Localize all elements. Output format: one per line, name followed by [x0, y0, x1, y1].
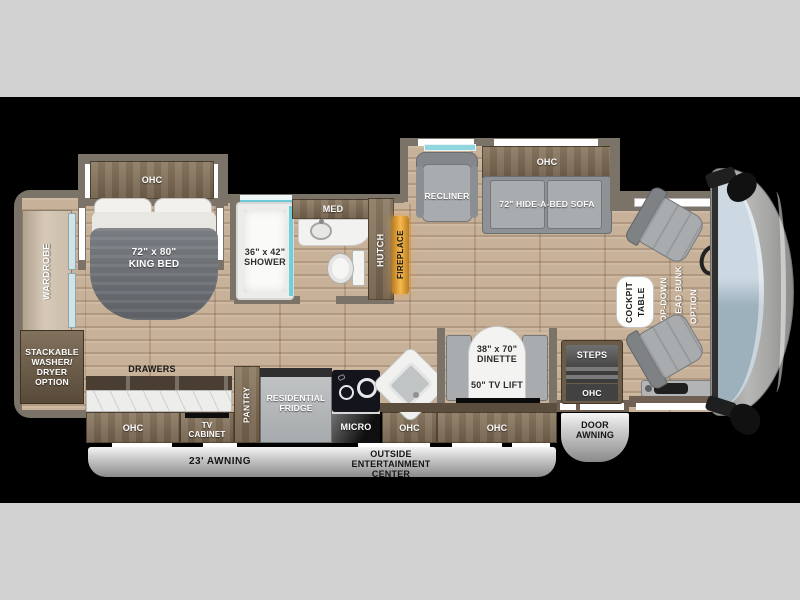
entry-door-strip-1	[560, 403, 576, 410]
fridge-top-vent	[260, 368, 332, 377]
tv-strip	[185, 413, 229, 418]
cap-highlight	[766, 192, 786, 392]
sink-icon	[310, 222, 332, 240]
dinette-slide-wall-right	[549, 328, 557, 404]
dinette-ohc: OHC	[437, 412, 557, 443]
burner-icon-small	[339, 385, 354, 400]
wardrobe-mirror-top	[68, 213, 76, 270]
steps-ohc-label: OHC	[566, 387, 618, 399]
awning-label: 23' AWNING	[150, 455, 290, 468]
kitchen-drawer-band	[86, 376, 232, 390]
shower-label: 36" x 42" SHOWER	[238, 244, 292, 270]
recliner-window	[424, 144, 476, 151]
steps-label: STEPS	[566, 349, 618, 361]
door-awning-label: DOOR AWNING	[561, 418, 629, 442]
entertainment-center-label: OUTSIDE ENTERTAINMENT CENTER	[336, 448, 446, 479]
kitchen-ohc-left: OHC	[86, 412, 180, 443]
kitchen-base-strip	[380, 403, 557, 412]
king-bed-label: 72" x 80" KING BED	[104, 246, 204, 272]
fireplace-label: FIREPLACE	[392, 218, 409, 292]
drawers-label: DRAWERS	[102, 363, 202, 375]
floorplan-image: OHC 72" x 80" KING BED WARDROBE STACKABL…	[0, 0, 800, 600]
fridge-label: RESIDENTIAL FRIDGE	[260, 392, 332, 414]
bedroom-side-window-left	[79, 208, 85, 260]
king-bed-mattress	[90, 228, 218, 320]
recliner-label: RECLINER	[414, 190, 480, 202]
dinette-slide-wall-left	[437, 328, 445, 404]
dinette-label: 38" x 70" DINETTE	[464, 342, 530, 366]
sofa-label: 72" HIDE-A-BED SOFA	[482, 198, 612, 210]
steps-treads	[566, 367, 618, 383]
bedroom-ohc-cabinet: OHC	[90, 161, 214, 199]
living-window-right	[494, 139, 598, 146]
kitchen-faucet-icon	[413, 392, 419, 398]
pantry-label: PANTRY	[235, 372, 259, 438]
wardrobe-mirror-bottom	[68, 273, 76, 328]
wardrobe-label: WARDROBE	[34, 222, 60, 322]
kitchen-counter	[86, 390, 232, 412]
sofa-ohc-cabinet: OHC	[482, 146, 612, 178]
bath-vanity	[298, 219, 372, 246]
faucet-icon	[319, 219, 324, 224]
washer-dryer-label: STACKABLE WASHER/ DRYER OPTION	[21, 336, 83, 398]
cockpit-table-label: COCKPIT TABLE	[617, 278, 653, 326]
med-cabinet: MED	[292, 199, 374, 219]
entry-door-strip-2	[580, 403, 624, 410]
tv-lift-label: 50" TV LIFT	[460, 379, 534, 391]
toilet-icon	[327, 253, 354, 284]
microwave-label: MICRO	[332, 420, 380, 434]
hutch-label: HUTCH	[369, 210, 393, 290]
tv-cabinet-label: TV CABINET	[180, 419, 234, 441]
